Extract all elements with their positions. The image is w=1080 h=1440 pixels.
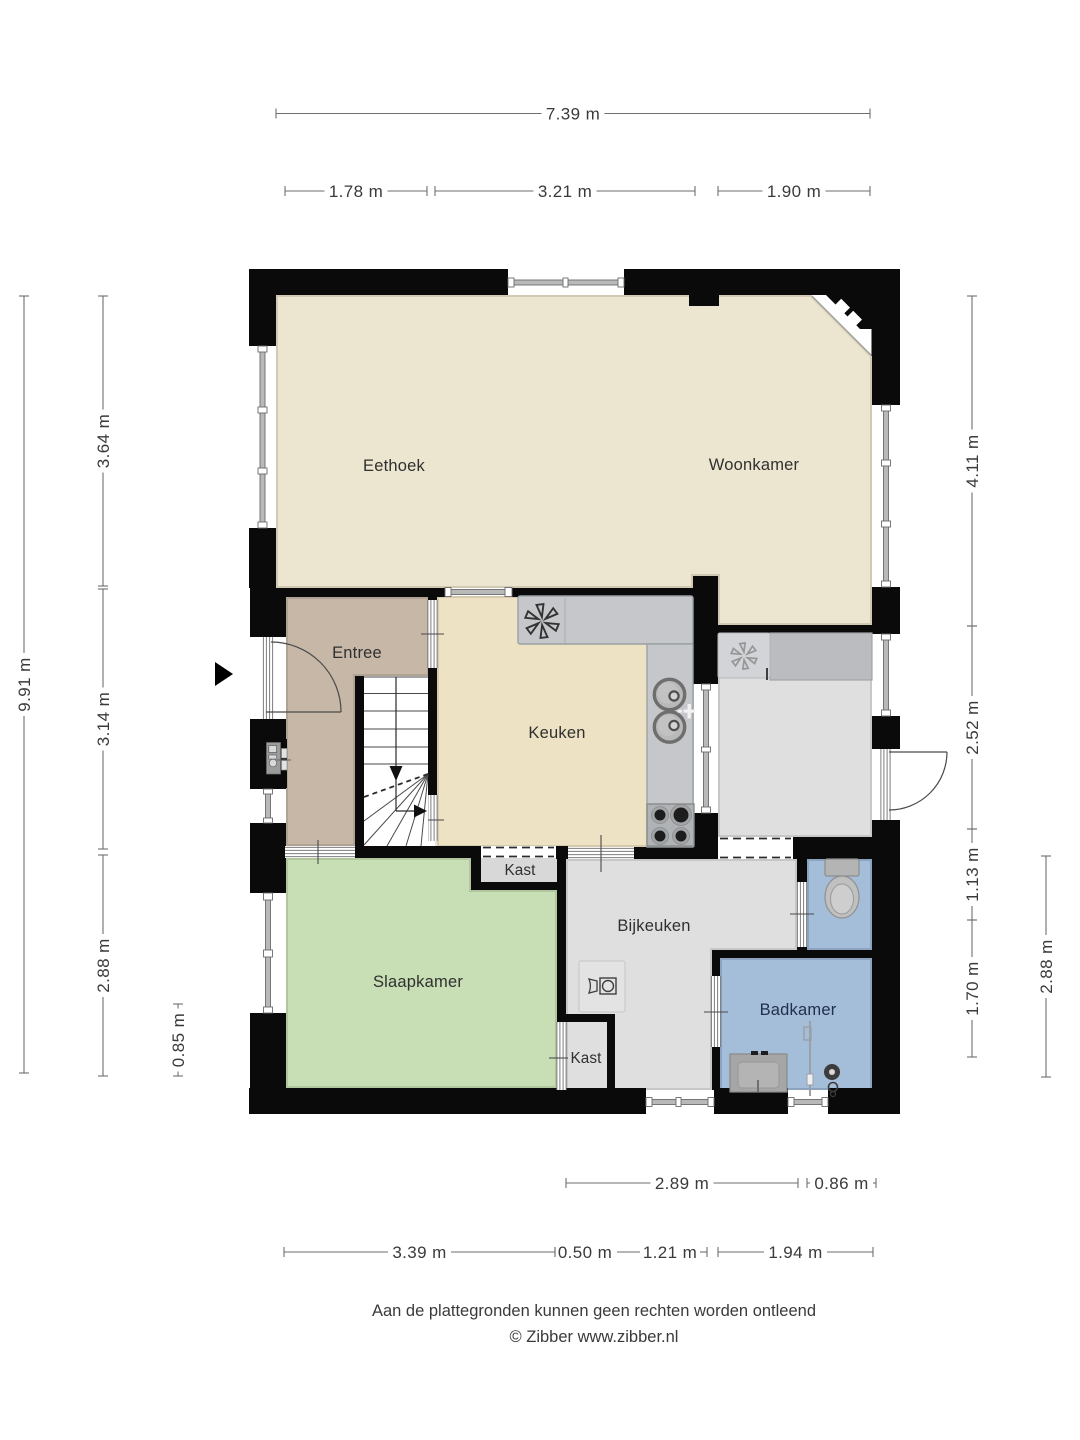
svg-text:Bijkeuken: Bijkeuken — [617, 917, 690, 935]
svg-text:0.50 m: 0.50 m — [558, 1243, 612, 1262]
svg-text:3.21 m: 3.21 m — [538, 182, 592, 201]
svg-text:2.88 m: 2.88 m — [94, 938, 113, 992]
svg-text:Badkamer: Badkamer — [760, 1001, 837, 1019]
svg-text:Kast: Kast — [570, 1050, 602, 1067]
svg-text:0.86 m: 0.86 m — [814, 1174, 868, 1193]
svg-text:1.13 m: 1.13 m — [963, 847, 982, 901]
svg-text:Kast: Kast — [504, 862, 536, 879]
svg-text:9.91 m: 9.91 m — [15, 657, 34, 711]
svg-text:1.21 m: 1.21 m — [643, 1243, 697, 1262]
svg-text:7.39 m: 7.39 m — [546, 105, 600, 124]
svg-text:1.78 m: 1.78 m — [329, 182, 383, 201]
svg-text:3.39 m: 3.39 m — [392, 1243, 446, 1262]
svg-text:3.64 m: 3.64 m — [94, 414, 113, 468]
svg-text:1.90 m: 1.90 m — [767, 182, 821, 201]
svg-text:Aan de plattegronden kunnen ge: Aan de plattegronden kunnen geen rechten… — [372, 1302, 816, 1320]
svg-text:0.85 m: 0.85 m — [169, 1013, 188, 1067]
svg-text:© Zibber www.zibber.nl: © Zibber www.zibber.nl — [510, 1328, 679, 1346]
svg-text:Woonkamer: Woonkamer — [709, 456, 800, 474]
svg-text:4.11 m: 4.11 m — [963, 434, 982, 487]
svg-text:2.52 m: 2.52 m — [963, 700, 982, 754]
svg-text:2.88 m: 2.88 m — [1037, 939, 1056, 993]
svg-text:Slaapkamer: Slaapkamer — [373, 973, 463, 991]
svg-text:Keuken: Keuken — [528, 724, 585, 742]
svg-text:Eethoek: Eethoek — [363, 457, 425, 475]
svg-text:3.14 m: 3.14 m — [94, 692, 113, 746]
svg-text:2.89 m: 2.89 m — [655, 1174, 709, 1193]
svg-text:Entree: Entree — [332, 644, 382, 662]
svg-text:1.94 m: 1.94 m — [768, 1243, 822, 1262]
svg-text:1.70 m: 1.70 m — [963, 961, 982, 1015]
